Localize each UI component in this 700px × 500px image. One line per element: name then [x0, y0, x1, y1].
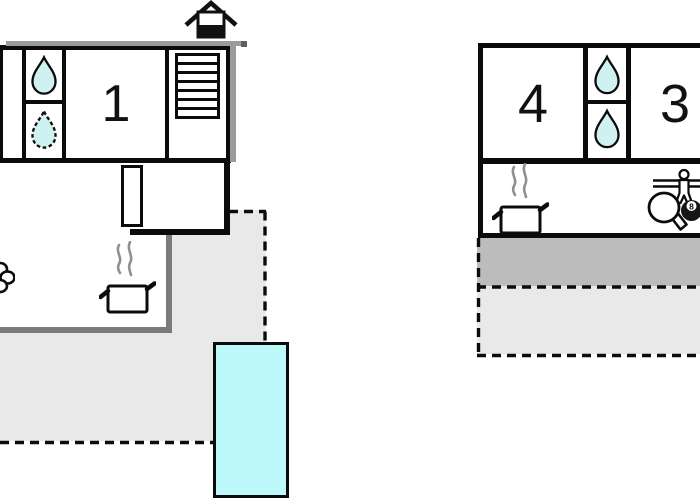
plant-icon: [0, 261, 15, 294]
floor-plan-canvas: 1 4 3: [0, 0, 700, 500]
eight-ball-number: 8: [689, 202, 694, 212]
entrance-house-icon: [184, 0, 238, 44]
shower-drop-icon: [593, 54, 621, 96]
wall-shadow-right: [230, 41, 236, 162]
stove-pot-icon: [492, 196, 549, 236]
terrace-left-area-lower: [0, 333, 172, 441]
wall: [588, 100, 626, 104]
stairs-icon: [175, 53, 220, 119]
shower-drop-icon: [30, 55, 58, 96]
shower-drop-dashed-icon: [30, 107, 58, 152]
terrace-right-area: [477, 286, 700, 354]
annex-wall-bottom: [0, 327, 172, 333]
terrace-left-notch: [230, 210, 266, 235]
annex-wall-right: [166, 235, 172, 333]
covered-terrace-right: [477, 238, 700, 286]
steam-icon: [111, 241, 139, 278]
wall: [24, 100, 64, 104]
room-1-label: 1: [66, 55, 166, 153]
wall: [22, 50, 26, 158]
house-door: [200, 25, 223, 36]
wall: [224, 158, 230, 235]
steam-icon: [506, 163, 534, 200]
swimming-pool: [213, 342, 289, 498]
stove-pot-icon: [99, 275, 156, 315]
wall: [130, 229, 230, 235]
eight-ball-icon: 8: [681, 200, 700, 221]
interior-door: [121, 165, 143, 227]
wall-shadow-corner: [241, 41, 247, 47]
games-icons: 8: [633, 162, 700, 238]
room-3-label: 3: [631, 56, 700, 152]
shower-drop-icon: [593, 106, 621, 152]
room-4-label: 4: [483, 56, 583, 152]
